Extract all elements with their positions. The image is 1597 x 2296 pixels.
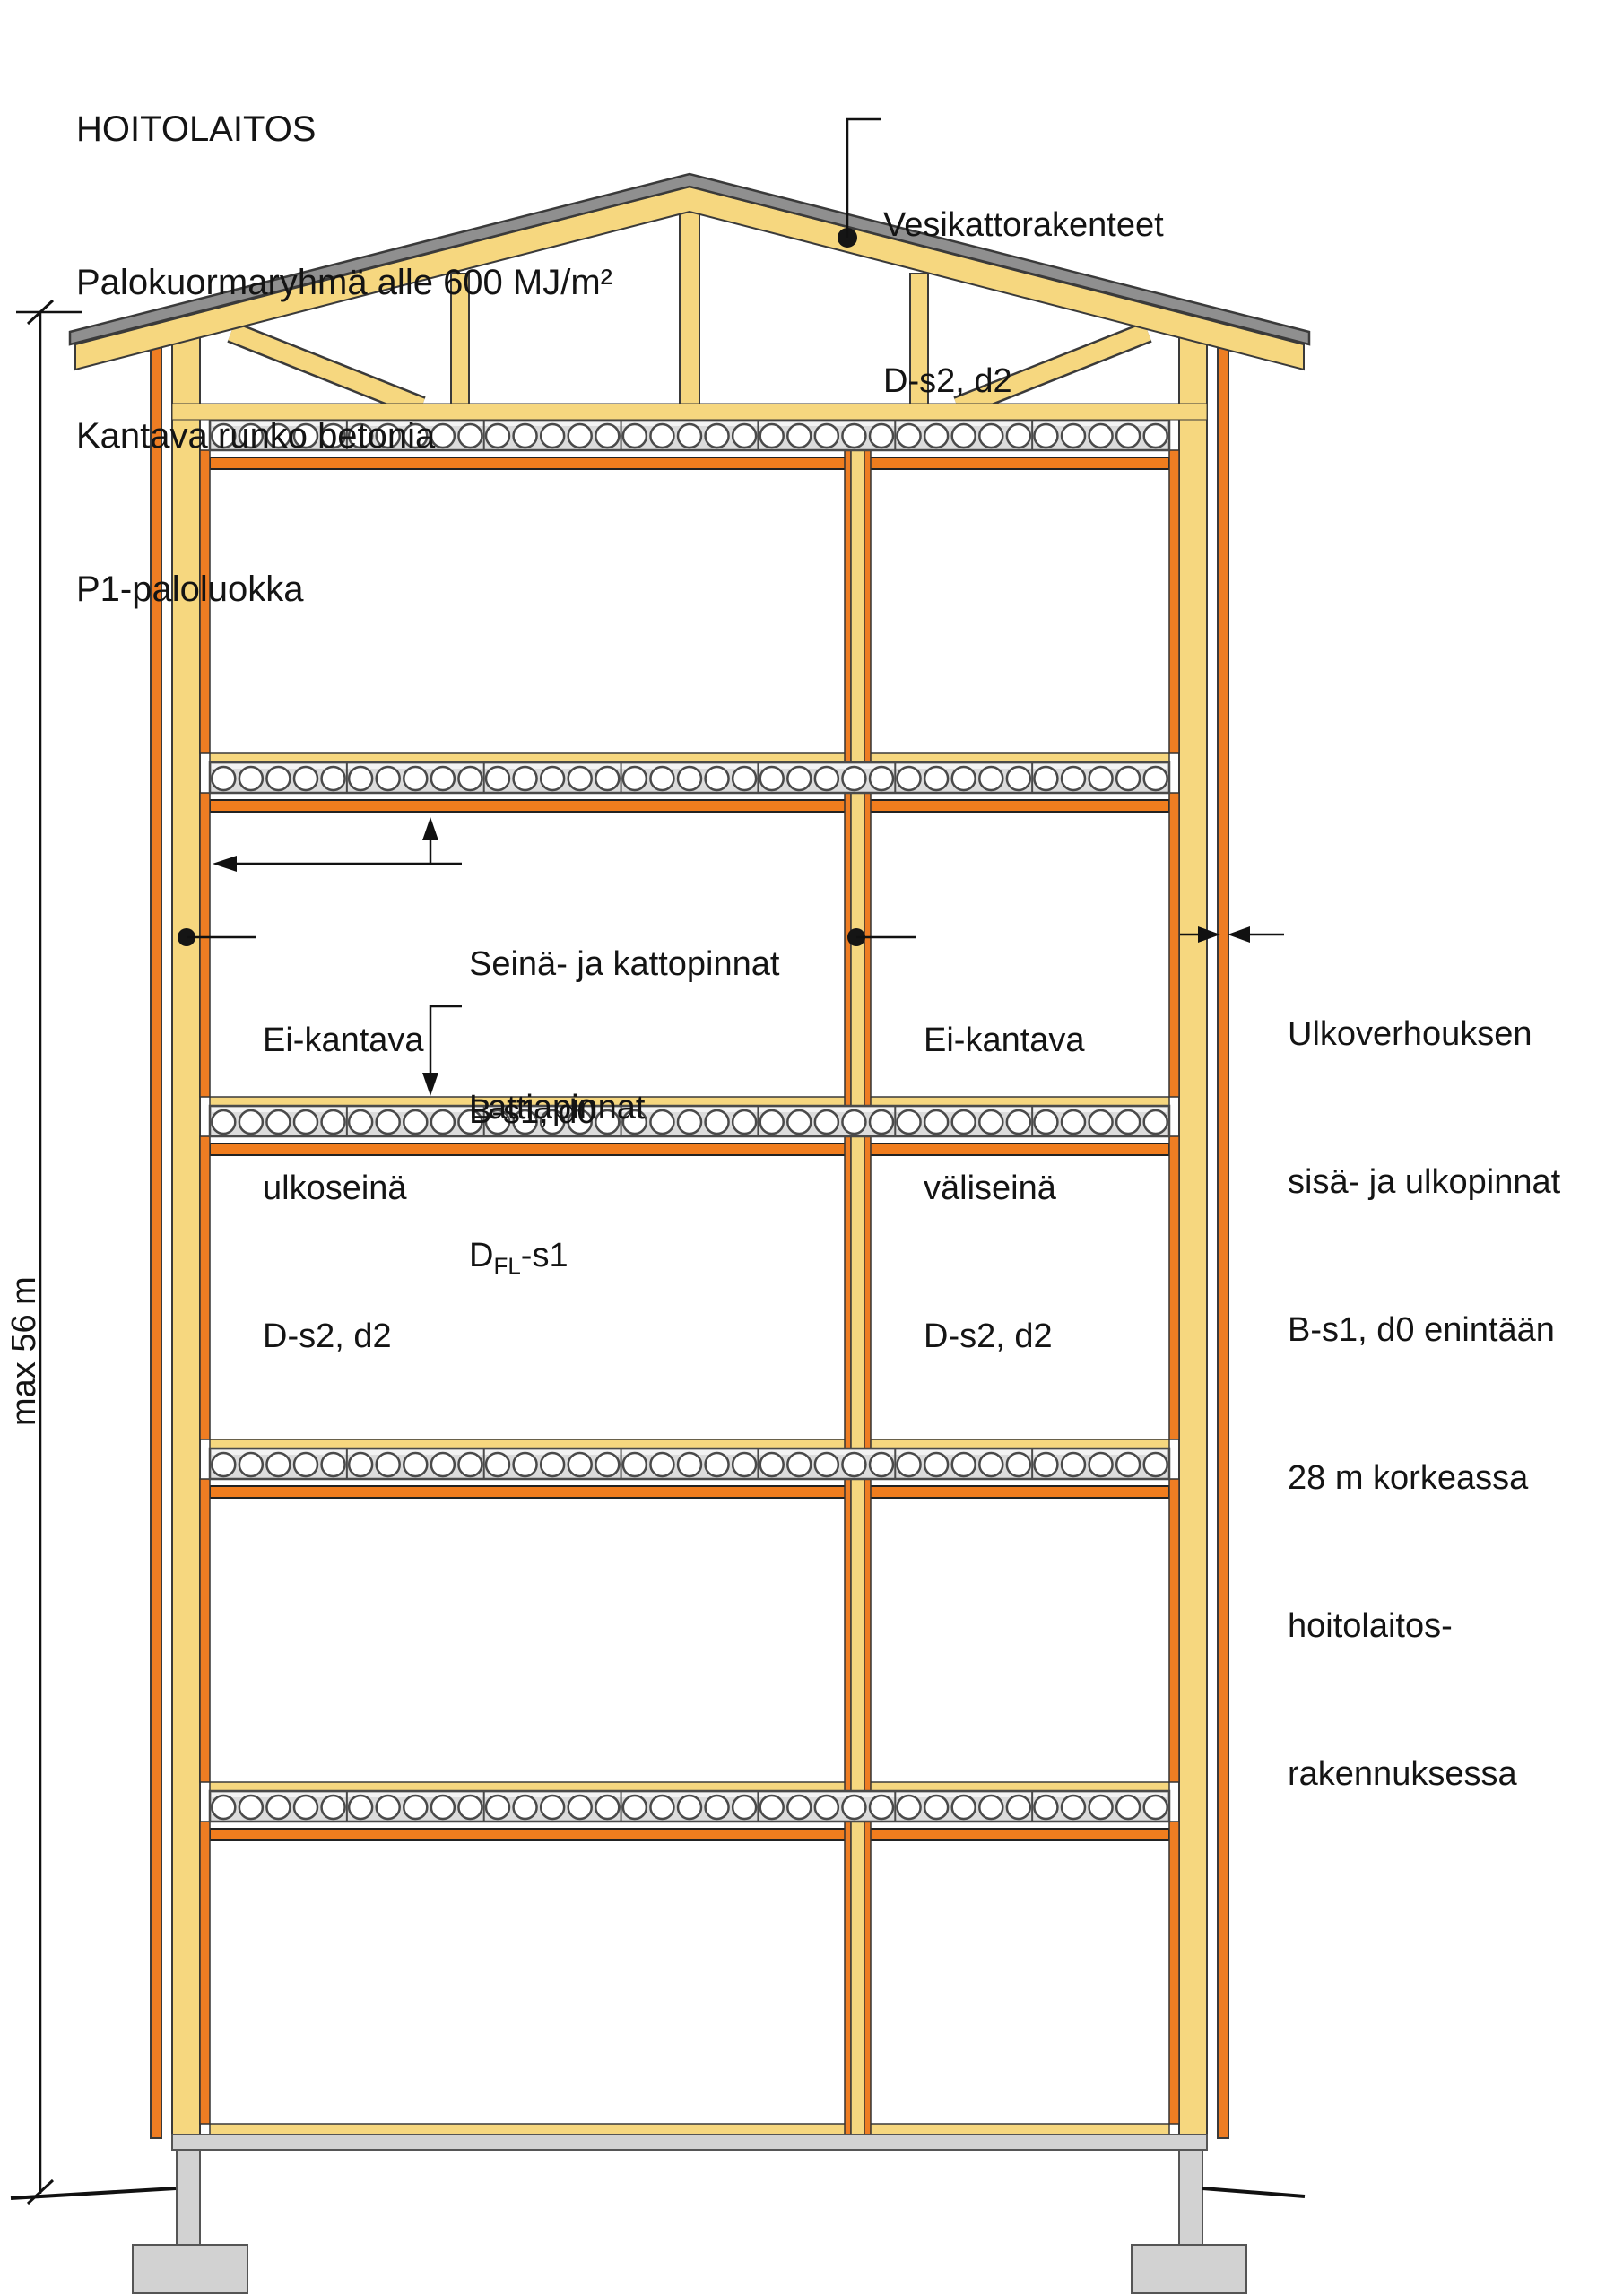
slab-void	[266, 1453, 290, 1476]
interior-wall-board	[200, 1136, 210, 1439]
label-partition-wall: Ei-kantava väliseinä D-s2, d2	[924, 918, 1085, 1411]
slab-void	[541, 1453, 564, 1476]
slab-void	[322, 1796, 345, 1819]
interior-wall-board	[1169, 1822, 1179, 2124]
partition-board	[845, 793, 851, 1106]
slab-void	[322, 767, 345, 790]
slab-void	[1089, 1453, 1113, 1476]
slab-void	[815, 1110, 838, 1134]
interior-wall-board	[1169, 793, 1179, 1097]
slab-void	[898, 1796, 921, 1819]
slab-void	[294, 1453, 317, 1476]
interior-wall-board	[200, 1479, 210, 1782]
slab-void	[870, 1110, 893, 1134]
foundation	[11, 2135, 1305, 2293]
slab-void	[1062, 1796, 1085, 1819]
slab-void	[1089, 1796, 1113, 1819]
interior-wall-board	[1169, 450, 1179, 753]
slab-void	[650, 424, 673, 448]
slab-void	[815, 1796, 838, 1819]
partition-board	[845, 1479, 851, 1791]
slab-void	[404, 1796, 427, 1819]
slab-void	[294, 767, 317, 790]
interior-wall-board	[1169, 1136, 1179, 1439]
slab-void	[815, 424, 838, 448]
floor-surface-arrowhead	[422, 1073, 438, 1096]
slab-void	[898, 1453, 921, 1476]
cladding-outer-arrowhead	[1228, 926, 1250, 943]
slab-void	[979, 1796, 1002, 1819]
slab-void	[458, 767, 482, 790]
slab-void	[623, 424, 647, 448]
ceiling-band	[210, 800, 1169, 812]
floor-strip	[210, 1782, 1169, 1791]
slab-void	[1116, 767, 1140, 790]
label-exterior-wall: Ei-kantava ulkoseinä D-s2, d2	[263, 918, 424, 1411]
floor-strip	[210, 753, 1169, 762]
slab-void	[1007, 1453, 1030, 1476]
slab-void	[568, 1796, 592, 1819]
slab-void	[458, 1453, 482, 1476]
partition-board	[864, 793, 871, 1106]
slab-void	[266, 1796, 290, 1819]
slab-void	[760, 1453, 784, 1476]
right-footing	[1132, 2245, 1246, 2293]
slab-void	[924, 1796, 948, 1819]
interior-wall-board	[200, 793, 210, 1097]
title-building-type: HOITOLAITOS	[76, 104, 612, 155]
slab-void	[1144, 767, 1167, 790]
ground-line-right	[1202, 2188, 1305, 2196]
slab-void	[595, 1453, 619, 1476]
slab-void	[1116, 1796, 1140, 1819]
ceiling-band	[210, 1829, 1169, 1840]
slab-void	[595, 767, 619, 790]
slab-void	[760, 424, 784, 448]
slab-void	[568, 1453, 592, 1476]
slab-void	[349, 1453, 372, 1476]
slab-void	[870, 767, 893, 790]
slab-void	[815, 1453, 838, 1476]
slab-void	[842, 1453, 865, 1476]
slab-void	[842, 1796, 865, 1819]
slab-void	[1034, 1796, 1057, 1819]
slab-void	[706, 767, 729, 790]
slab-void	[239, 767, 263, 790]
partition-stud	[851, 793, 864, 1106]
partition-stud	[851, 1136, 864, 1448]
slab-void	[924, 1453, 948, 1476]
slab-void	[212, 1453, 235, 1476]
slab-void	[650, 767, 673, 790]
label-cladding: Ulkoverhouksen sisä- ja ulkopinnat B-s1,…	[1288, 911, 1560, 1848]
slab-void	[514, 767, 537, 790]
slab-void	[706, 1453, 729, 1476]
slab-void	[212, 767, 235, 790]
right-wall-column	[1179, 314, 1207, 2135]
slab-void	[678, 1796, 701, 1819]
partition-board	[845, 450, 851, 762]
slab-void	[870, 1796, 893, 1819]
interior-wall-board	[200, 1822, 210, 2124]
interior-wall-board	[1169, 1479, 1179, 1782]
slab-void	[1144, 1110, 1167, 1134]
slab-void	[1062, 1453, 1085, 1476]
slab-void	[458, 1796, 482, 1819]
floor-surface-arrow-line	[430, 1006, 462, 1075]
slab-void	[1144, 1453, 1167, 1476]
slab-void	[212, 1110, 235, 1134]
slab-void	[1144, 1796, 1167, 1819]
slab-void	[541, 767, 564, 790]
slab-void	[733, 424, 756, 448]
slab-void	[979, 767, 1002, 790]
slab-void	[787, 1796, 811, 1819]
slab-void	[787, 1453, 811, 1476]
slab-void	[1089, 1110, 1113, 1134]
slab-void	[1089, 767, 1113, 790]
height-dimension	[16, 300, 82, 2204]
ground-floor-slab	[172, 2135, 1207, 2150]
slab-void	[787, 1110, 811, 1134]
slab-void	[706, 424, 729, 448]
slab-void	[568, 767, 592, 790]
fire-safety-section-page: { "title": { "line1": "HOITOLAITOS", "li…	[0, 0, 1597, 2296]
slab-void	[952, 1453, 976, 1476]
title-frame: Kantava runko betonia	[76, 411, 612, 462]
partition-board	[864, 1136, 871, 1448]
slab-void	[898, 767, 921, 790]
label-roof-structures: Vesikattorakenteet D-s2, d2	[883, 95, 1164, 459]
partition-stud	[851, 1822, 864, 2135]
slab-void	[842, 1110, 865, 1134]
slab-void	[1034, 767, 1057, 790]
slab-void	[623, 767, 647, 790]
slab-void	[212, 1796, 235, 1819]
partition-board	[864, 1822, 871, 2135]
slab-void	[842, 767, 865, 790]
slab-void	[404, 767, 427, 790]
floor-class-code: DFL-s1	[469, 1231, 646, 1291]
slab-void	[514, 1796, 537, 1819]
slab-void	[377, 1796, 400, 1819]
slab-void	[924, 767, 948, 790]
slab-void	[404, 1453, 427, 1476]
slab-void	[979, 1453, 1002, 1476]
partition-board	[845, 1136, 851, 1448]
partition-board	[845, 1822, 851, 2135]
right-cladding-board	[1218, 325, 1228, 2138]
title-block: HOITOLAITOS Palokuormaryhmä alle 600 MJ/…	[76, 2, 612, 666]
slab-void	[239, 1796, 263, 1819]
floor-strip	[210, 1439, 1169, 1448]
slab-void	[294, 1796, 317, 1819]
partition-stud	[851, 450, 864, 762]
slab-void	[650, 1453, 673, 1476]
partition-stud	[851, 1479, 864, 1791]
slab-void	[349, 767, 372, 790]
slab-void	[541, 1796, 564, 1819]
label-max-height: max 56 m	[0, 1276, 49, 1426]
ceiling-surface-arrowhead	[422, 817, 438, 840]
slab-void	[678, 767, 701, 790]
slab-void	[623, 1453, 647, 1476]
label-floor-surfaces: Lattiapinnat DFL-s1	[469, 985, 646, 1341]
slab-void	[266, 767, 290, 790]
slab-void	[760, 1796, 784, 1819]
floor-strip	[210, 2124, 1169, 2135]
slab-void	[486, 1796, 509, 1819]
slab-void	[650, 1796, 673, 1819]
wall-surface-arrowhead	[213, 856, 237, 872]
slab-void	[514, 1453, 537, 1476]
slab-void	[952, 1796, 976, 1819]
slab-void	[349, 1796, 372, 1819]
slab-void	[678, 424, 701, 448]
slab-void	[486, 1453, 509, 1476]
slab-void	[1007, 1796, 1030, 1819]
slab-void	[870, 1453, 893, 1476]
slab-void	[760, 767, 784, 790]
truss-king-post	[680, 190, 699, 405]
right-foundation-pier	[1179, 2150, 1202, 2247]
slab-void	[678, 1453, 701, 1476]
slab-void	[1116, 1110, 1140, 1134]
partition-board	[864, 450, 871, 762]
slab-void	[787, 767, 811, 790]
slab-void	[1034, 1453, 1057, 1476]
slab-void	[898, 1110, 921, 1134]
slab-void	[595, 1796, 619, 1819]
left-foundation-pier	[177, 2150, 200, 2247]
slab-void	[815, 767, 838, 790]
slab-void	[733, 767, 756, 790]
slab-void	[431, 1796, 455, 1819]
slab-void	[239, 1110, 263, 1134]
left-footing	[133, 2245, 247, 2293]
slab-void	[842, 424, 865, 448]
slab-void	[733, 1453, 756, 1476]
slab-void	[239, 1453, 263, 1476]
slab-void	[431, 1453, 455, 1476]
ceiling-band	[210, 1486, 1169, 1498]
slab-void	[486, 767, 509, 790]
slab-void	[733, 1796, 756, 1819]
slab-void	[431, 1110, 455, 1134]
slab-void	[377, 1453, 400, 1476]
slab-void	[322, 1453, 345, 1476]
slab-void	[377, 767, 400, 790]
slab-void	[787, 424, 811, 448]
slab-void	[1007, 767, 1030, 790]
title-fire-load: Palokuormaryhmä alle 600 MJ/m²	[76, 257, 612, 309]
slab-void	[706, 1796, 729, 1819]
slab-void	[952, 767, 976, 790]
title-fire-class: P1-paloluokka	[76, 564, 612, 615]
slab-void	[1116, 1453, 1140, 1476]
slab-void	[623, 1796, 647, 1819]
slab-void	[1062, 767, 1085, 790]
slab-void	[431, 767, 455, 790]
partition-board	[864, 1479, 871, 1791]
